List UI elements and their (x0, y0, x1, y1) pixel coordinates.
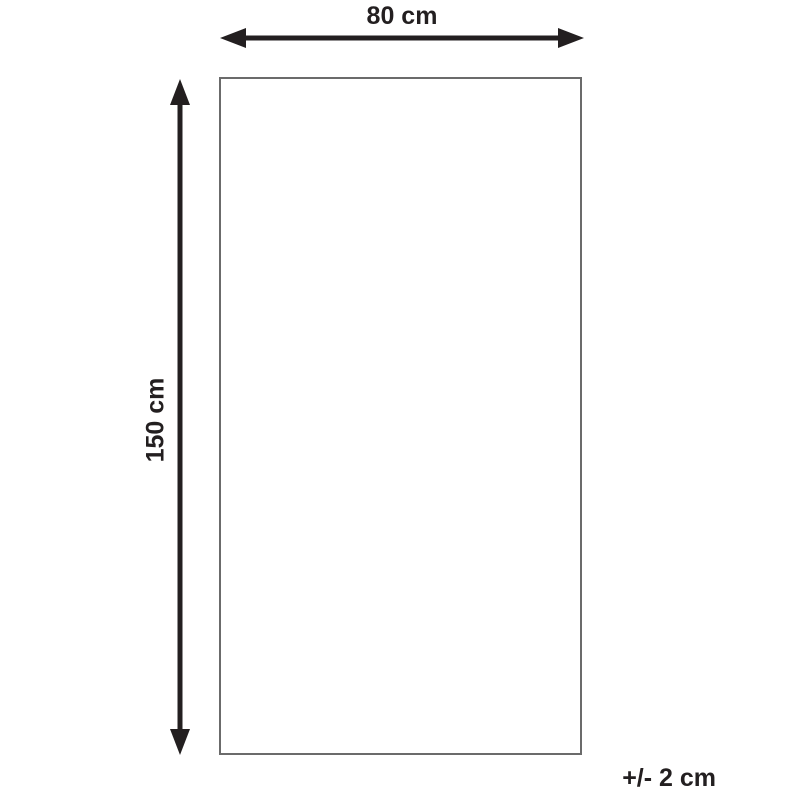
dimension-rectangle (219, 77, 582, 755)
height-dimension-arrow (168, 77, 192, 757)
height-label: 150 cm (142, 378, 171, 463)
dimension-diagram: 80 cm 150 cm +/- 2 cm (0, 0, 800, 800)
arrowhead-up-icon (170, 79, 190, 105)
arrowhead-left-icon (220, 28, 246, 48)
arrowhead-down-icon (170, 729, 190, 755)
arrowhead-right-icon (558, 28, 584, 48)
tolerance-label: +/- 2 cm (622, 764, 716, 793)
width-label: 80 cm (218, 2, 586, 31)
